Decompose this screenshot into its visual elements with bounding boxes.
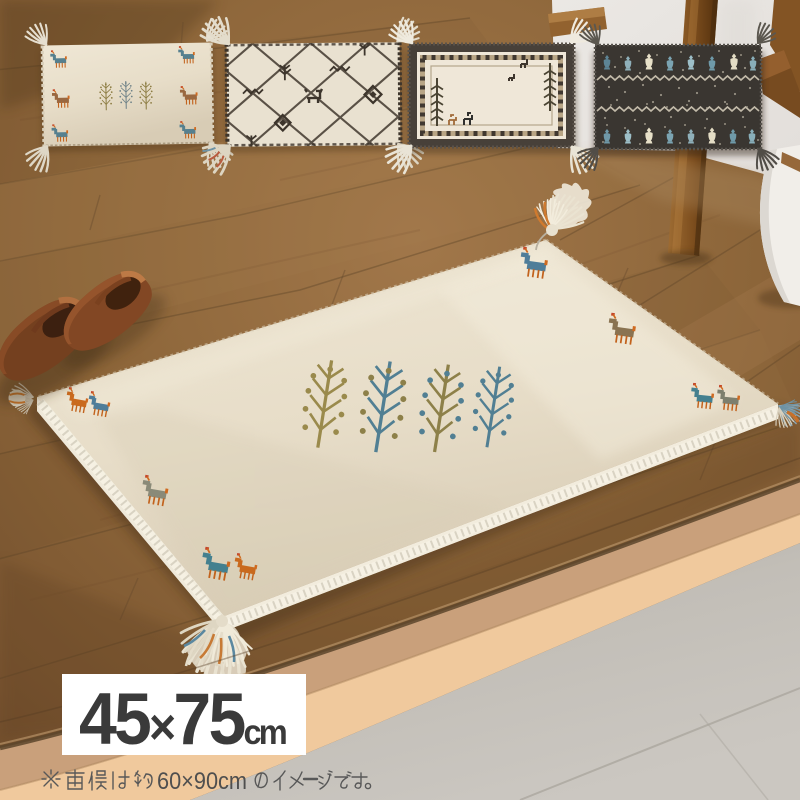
svg-text:60×90cm: 60×90cm xyxy=(157,768,247,795)
